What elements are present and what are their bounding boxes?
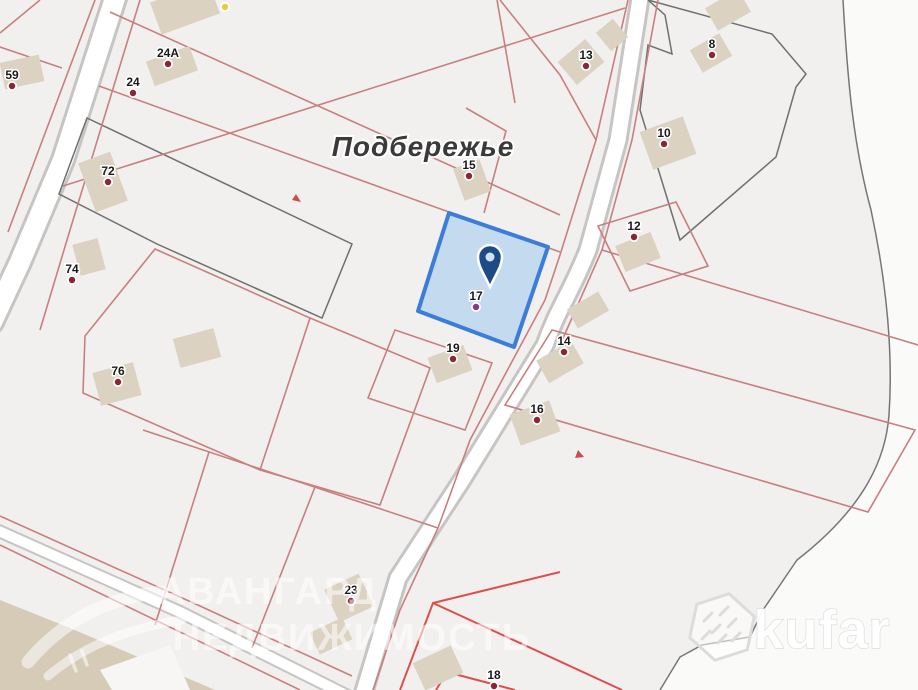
map-viewport[interactable]: Подбережье5924A2472747613810121517191416… [0, 0, 918, 690]
marker-dot [450, 356, 456, 362]
marker-dot [115, 379, 121, 385]
marker-dot [105, 179, 111, 185]
marker-dot [631, 234, 637, 240]
place-name-label: Подбережье [332, 131, 515, 162]
address-marker-label: 24 [126, 75, 140, 89]
address-marker-dot [220, 2, 230, 12]
marker-dot [130, 90, 136, 96]
address-marker-label: 76 [111, 364, 125, 378]
address-marker-label: 17 [469, 289, 483, 303]
marker-dot [466, 173, 472, 179]
address-marker-label: 8 [709, 37, 716, 51]
address-marker-label: 12 [627, 219, 641, 233]
address-marker-label: 16 [530, 402, 544, 416]
marker-dot [709, 52, 715, 58]
marker-dot [9, 83, 15, 89]
marker-dot [69, 277, 75, 283]
marker-dot [165, 61, 171, 67]
marker-dot [561, 349, 567, 355]
marker-dot [661, 141, 667, 147]
address-marker-label: 24A [157, 46, 179, 60]
address-marker-label: 18 [487, 668, 501, 682]
marker-dot [473, 304, 479, 310]
map-canvas[interactable]: Подбережье5924A2472747613810121517191416… [0, 0, 918, 690]
watermark-avangard-line1: АВАНГАРД [158, 571, 379, 613]
marker-dot [491, 683, 497, 689]
address-marker-label: 74 [65, 262, 79, 276]
watermark-avangard-line2: НЕДВИЖИМОСТЬ [173, 617, 532, 659]
pin-inner-circle [486, 253, 495, 262]
address-marker-label: 13 [579, 48, 593, 62]
address-marker-label: 19 [446, 341, 460, 355]
address-marker-label: 59 [5, 68, 19, 82]
marker-dot [534, 417, 540, 423]
address-marker-18: 18 [487, 668, 501, 690]
watermark-kufar: kufar [753, 600, 890, 660]
address-marker-label: 14 [557, 334, 571, 348]
marker-dot [222, 4, 228, 10]
address-marker-label: 15 [462, 158, 476, 172]
marker-dot [583, 63, 589, 69]
address-marker-label: 72 [101, 164, 115, 178]
address-marker-label: 10 [657, 126, 671, 140]
